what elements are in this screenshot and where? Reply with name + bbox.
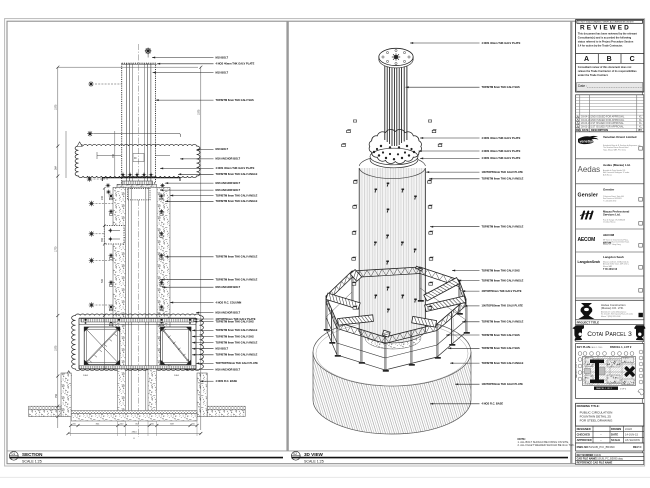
svg-text:DATE: DATE [611,432,618,436]
svg-text:C: C [630,56,635,63]
svg-text:LVHO: LVHO [625,427,632,431]
svg-text:TOP/BTM 6mm THK GALV ANGLE: TOP/BTM 6mm THK GALV ANGLE [216,328,258,332]
svg-text:4 NOS 40mm THK GALV PLATE: 4 NOS 40mm THK GALV PLATE [216,166,255,170]
svg-text:849: 849 [170,423,174,425]
svg-text:SCALE 1:25: SCALE 1:25 [304,460,324,464]
svg-text:TOP/BTM 6mm THK GALV ANGLE: TOP/BTM 6mm THK GALV ANGLE [216,193,258,197]
svg-text:100/TOP/50mm THK GALV PLATE: 100/TOP/50mm THK GALV PLATE [482,382,524,386]
svg-text:PARCEL 1, LOT 1: PARCEL 1, LOT 1 [575,361,578,378]
svg-text:4 NOS R.C. COLUMN: 4 NOS R.C. COLUMN [216,300,242,304]
svg-text:REFERENCE CAD FILE NAME: REFERENCE CAD FILE NAME [577,462,613,465]
svg-text:--: -- [600,439,602,442]
svg-text:M16 ANCHOR BOLT: M16 ANCHOR BOLT [216,181,241,185]
svg-text:PARCEL 1 OF 2: PARCEL 1 OF 2 [596,387,613,390]
svg-text:DRAWING TITLE:: DRAWING TITLE: [577,404,600,408]
svg-text:M10 BOLT: M10 BOLT [216,347,229,351]
svg-text:51SUB_PCI_B5/090: 51SUB_PCI_B5/090 [589,445,615,449]
svg-text:40/TOP/50mm THK GALV PLATE: 40/TOP/50mm THK GALV PLATE [482,289,522,293]
svg-text:T 85 2833 08: T 85 2833 08 [603,268,618,271]
svg-text:APPROVED: APPROVED [577,438,592,442]
svg-text:DESIGNED: DESIGNED [577,427,591,431]
svg-text:350: 350 [101,237,104,242]
svg-text:COTAI PARCEL 3: COTAI PARCEL 3 [587,331,632,338]
svg-text:200: 200 [150,423,154,425]
svg-text:1575: 1575 [55,104,58,110]
svg-text:Consultants(s) and is accor: Consultants(s) and is accorded the follo… [578,37,632,40]
svg-text:Macau T (853) 2870 0168: Macau T (853) 2870 0168 [601,316,620,318]
svg-text:200: 200 [191,423,195,425]
svg-text:FOR STEEL DRAWING: FOR STEEL DRAWING [580,419,613,423]
svg-text:TOP/BTM 6mm THK GALV SHS: TOP/BTM 6mm THK GALV SHS [482,333,521,337]
svg-text:TOP/BTM 6mm THK GALV ANGLE: TOP/BTM 6mm THK GALV ANGLE [216,199,258,203]
svg-text:(Macau) CO. LTD.: (Macau) CO. LTD. [601,306,624,310]
svg-text:TOP/BTM 6mm THK GALV ANGLE: TOP/BTM 6mm THK GALV ANGLE [482,320,524,324]
svg-text:AS SHOWN: AS SHOWN [625,438,640,442]
svg-text:Aedas (Macau) Ltd.: Aedas (Macau) Ltd. [603,163,631,167]
svg-text:KEY NUMBER: KEY NUMBER [577,454,594,457]
svg-text:M16 ANCHOR BOLT: M16 ANCHOR BOLT [216,310,241,314]
svg-text:4 NOS R.C. BASE: 4 NOS R.C. BASE [216,379,238,383]
svg-text:LangdonSeah: LangdonSeah [578,260,600,264]
svg-text:1575: 1575 [55,345,58,351]
svg-text:Gensler: Gensler [603,188,615,192]
svg-text:Consultant review of this: Consultant review of this document does … [578,66,632,69]
svg-text:91049: 91049 [594,454,602,457]
svg-text:200: 200 [120,423,124,425]
svg-text:352: 352 [135,423,139,425]
svg-text:REV C: REV C [633,445,642,449]
svg-text:750: 750 [55,393,58,398]
svg-text:500: 500 [101,278,104,283]
svg-text:SECTION: SECTION [22,452,43,457]
svg-text:TOP/TOP/50mm THK GALV PLATE: TOP/TOP/50mm THK GALV PLATE [216,361,259,365]
svg-text:4 NOS 40mm THK GALV PLATE: 4 NOS 40mm THK GALV PLATE [482,149,521,153]
svg-text:TOP/BTM 6mm THK GALV ANGLE: TOP/BTM 6mm THK GALV ANGLE [482,361,524,365]
svg-text:DO NOT SCALE DRAWING. VERIFY A: DO NOT SCALE DRAWING. VERIFY ALL DIMENSI… [578,21,635,24]
svg-text:KEY PLAN: KEY PLAN [577,345,590,349]
svg-text:1770: 1770 [55,246,58,252]
svg-text:200: 200 [72,423,76,425]
svg-text:1 OF 2: 1 OF 2 [620,388,627,390]
svg-text:TOP/BTM 6mm THK GALV ANGLE: TOP/BTM 6mm THK GALV ANGLE [482,278,524,282]
svg-text:SCALE: SCALE [611,438,620,442]
svg-text:B: B [607,56,612,63]
svg-text:4 NOS R.C. BASE: 4 NOS R.C. BASE [482,402,504,406]
svg-text:2464: 2464 [174,375,180,377]
svg-text:TOP/BTM 6mm THK GALV ANGLE: TOP/BTM 6mm THK GALV ANGLE [216,255,258,259]
svg-text:CHECKED: CHECKED [577,432,590,436]
svg-text:DRAWN: DRAWN [611,427,621,431]
svg-text:2. ALL FILLET WELDED SHOULD BE: 2. ALL FILLET WELDED SHOULD BE 3mm THK. [518,443,575,447]
svg-text:This document has been reviewe: This document has been reviewed by the r… [578,33,637,36]
svg-text:364: 364 [55,165,58,170]
svg-text:844: 844 [96,423,100,425]
svg-text:A: A [584,56,589,63]
svg-text:2464: 2464 [83,375,89,377]
svg-text:AECOM: AECOM [578,237,596,243]
svg-text:TOP/BTM 6mm THK GALV SHS: TOP/BTM 6mm THK GALV SHS [482,346,521,350]
svg-text:Gensler: Gensler [578,193,599,199]
svg-text:TOP/BTM 6mm THK GALV ANGLE: TOP/BTM 6mm THK GALV ANGLE [216,278,258,282]
svg-text:90: 90 [134,158,137,160]
svg-text:Venetian Orient Limited: Venetian Orient Limited [603,135,637,139]
svg-text:under the Trade Contract.: under the Trade Contract. [578,74,609,77]
svg-text:02: 02 [293,452,297,456]
svg-text:Taipa, Macau SAR, P.R. China: Taipa, Macau SAR, P.R. China [603,148,626,151]
svg-text:100/TOP/50mm THK GALV PLATE: 100/TOP/50mm THK GALV PLATE [482,304,524,308]
svg-text:AECOM: AECOM [603,242,611,245]
svg-text:CAD FILE NAME: CAD FILE NAME [577,458,597,461]
svg-text:14-JUN-15: 14-JUN-15 [625,432,638,436]
svg-text:REVIEWED: REVIEWED [580,24,631,31]
svg-text:TOP/BTM 6mm THK GALV ANGLE: TOP/BTM 6mm THK GALV ANGLE [482,177,524,181]
svg-text:Date :: Date : [578,84,587,88]
svg-text:4 NOS 40mm THK GALV PLATE: 4 NOS 40mm THK GALV PLATE [482,41,521,45]
svg-text:T 1.415.433.3700: T 1.415.433.3700 [603,200,616,202]
svg-text:4 NOS 40mm THK GALV PLATE: 4 NOS 40mm THK GALV PLATE [482,136,521,140]
svg-text:M10 BOLT: M10 BOLT [216,147,229,151]
svg-text:4 NOS 40mm THK GALV PLATE: 4 NOS 40mm THK GALV PLATE [216,62,255,66]
svg-text:M16 ANCHOR BOLT: M16 ANCHOR BOLT [216,367,241,371]
svg-text:relieve the Trade Contractor: relieve the Trade Contractor of its resp… [578,70,638,73]
svg-text:TOP/BTM 6mm THK GALV ANGLE: TOP/BTM 6mm THK GALV ANGLE [482,225,524,229]
svg-text:TOP/BTM 6mm THK GALV SHS: TOP/BTM 6mm THK GALV SHS [216,319,255,323]
svg-text:A-B, Macau: A-B, Macau [603,173,612,176]
svg-text:1575: 1575 [198,109,201,115]
svg-text:8: 8 [133,438,135,440]
svg-text:51SUB_PC_B5090.dwg: 51SUB_PC_B5090.dwg [596,458,623,461]
svg-text:M16 ANCHOR BOLT: M16 ANCHOR BOLT [216,285,241,289]
svg-text:status referred to in Proj: status referred to in Project Procedure … [578,41,634,44]
svg-text:01: 01 [12,452,16,456]
svg-text:M16 ANCHOR BOLT: M16 ANCHOR BOLT [216,157,241,161]
svg-text:Langdon Seah: Langdon Seah [603,255,624,259]
svg-text:TOP/BTM 6mm THK GALV SHS: TOP/BTM 6mm THK GALV SHS [216,334,255,338]
svg-text:TOP/BTM 6mm THK GALV SHS: TOP/BTM 6mm THK GALV SHS [482,268,521,272]
svg-text:3D VIEW: 3D VIEW [304,452,324,457]
svg-text:SCALE 1:25: SCALE 1:25 [22,460,42,464]
svg-text:M16 ANCHOR BOLT: M16 ANCHOR BOLT [216,188,241,192]
svg-text:TOP/BTM 6mm THK GALV ANGLE: TOP/BTM 6mm THK GALV ANGLE [216,172,258,176]
svg-text:TOP/BTM 6mm THK GALV ANGLE: TOP/BTM 6mm THK GALV ANGLE [216,340,258,344]
svg-text:M10 BOLT: M10 BOLT [216,70,229,74]
svg-text:Aedas: Aedas [578,165,601,174]
svg-text:Services Ltd.: Services Ltd. [603,213,621,217]
svg-text:11 andar, Macau: 11 andar, Macau [603,221,616,224]
svg-text:PROJECT TITLE: PROJECT TITLE [577,320,600,324]
svg-text:PARCEL 1, LOT 2: PARCEL 1, LOT 2 [610,345,632,349]
svg-text:780: 780 [112,153,115,158]
svg-text:AECOM: AECOM [603,233,615,237]
svg-text:venetian: venetian [580,140,595,144]
svg-text:TOP/BTM 6mm THK GALV SHS: TOP/BTM 6mm THK GALV SHS [216,98,255,102]
svg-text:SCALE 1:7500: SCALE 1:7500 [589,346,603,349]
svg-text:TOP/BTM 6mm THK GALV SHS: TOP/BTM 6mm THK GALV SHS [482,85,521,89]
svg-text:M10 BOLT: M10 BOLT [216,55,229,59]
svg-text:5.4 for action by the Tra: 5.4 for action by the Trade Contractor. [578,45,623,48]
svg-text:2844: 2844 [132,431,138,433]
svg-text:200: 200 [101,195,104,200]
svg-text:DWG NO: DWG NO [577,445,590,449]
svg-text:--: -- [600,433,602,436]
svg-text:4 NOS 40mm THK GALV PLATE: 4 NOS 40mm THK GALV PLATE [482,156,521,160]
svg-text:TOP/BTM 6mm THK GALV ANGLE: TOP/BTM 6mm THK GALV ANGLE [216,353,258,357]
svg-text:100/TOP/50mm THK GALV PLATE: 100/TOP/50mm THK GALV PLATE [482,170,524,174]
